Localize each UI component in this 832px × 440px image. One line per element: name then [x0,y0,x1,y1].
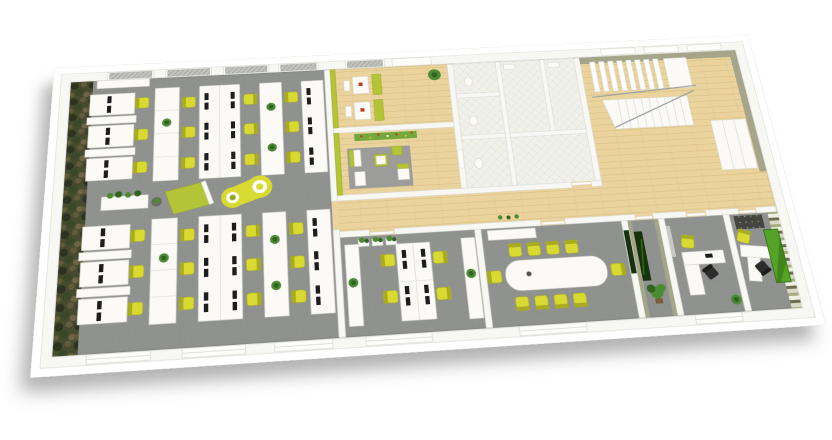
monitor [705,254,713,258]
sink [503,64,515,70]
lounge-chair [355,172,366,186]
lime-bench [372,74,382,95]
l-desk-top [682,250,726,265]
conference-table [504,255,610,291]
dark-dotted-rug [733,215,765,230]
lime-bench [374,99,385,120]
floorplan-svg [30,35,826,378]
table-flowers [358,83,362,87]
office-floorplan-image [0,0,832,440]
lime-pouf [392,146,403,156]
sink [547,62,559,67]
floorplan-projection [30,35,826,378]
table-flowers [360,108,364,112]
lower-flight [602,96,693,130]
